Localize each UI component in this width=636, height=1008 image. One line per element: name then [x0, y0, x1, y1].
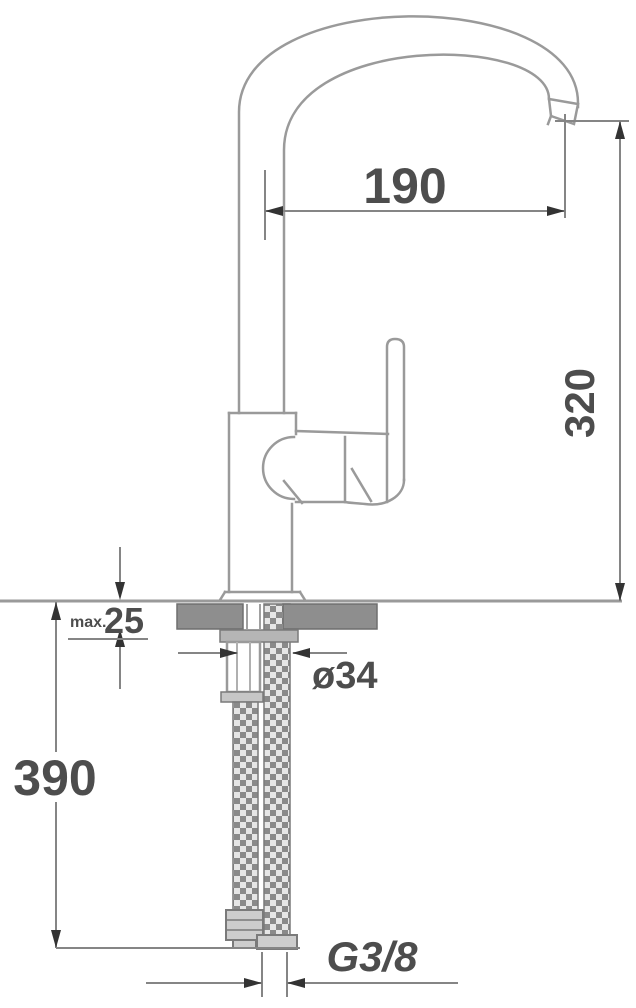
- hose-fitting-right: [257, 935, 297, 949]
- counter-slab-left: [177, 604, 243, 629]
- hose-end-left: [233, 940, 256, 948]
- spout-tip-edge: [548, 116, 551, 124]
- faucet-dimension-drawing: 190 320 max. 25 ø34: [0, 0, 636, 1008]
- arrowhead-top: [615, 121, 625, 139]
- arrowhead-bottom: [51, 930, 61, 948]
- faucet-outline: [220, 16, 578, 600]
- lever-arm-top: [296, 431, 388, 434]
- dim-deck-thickness-label: 25: [104, 600, 144, 641]
- threaded-shank: [227, 642, 260, 692]
- mounting-nut: [221, 692, 263, 702]
- braided-hose-right: [264, 604, 290, 935]
- cartridge-dome-arc: [263, 437, 294, 499]
- spout-outer-curve: [239, 16, 578, 413]
- dim-connection-thread-label: G3/8: [326, 933, 418, 980]
- arrowhead-right-tip: [244, 978, 262, 988]
- arrowhead-down: [115, 582, 125, 600]
- arrowhead-bottom: [615, 583, 625, 601]
- base-flare-right: [300, 592, 305, 600]
- shank-through-hole: [247, 604, 260, 629]
- dim-spout-height: 320: [555, 121, 629, 601]
- arrowhead-left-tip: [292, 648, 310, 658]
- dim-spout-reach: 190: [265, 114, 565, 240]
- dim-hole-diameter-label: ø34: [312, 655, 377, 697]
- lever-inner-diagonal: [352, 469, 371, 501]
- arrowhead-right: [547, 206, 565, 216]
- counter-slab-right: [283, 604, 377, 629]
- base-flare-left: [220, 592, 225, 600]
- arrowhead-top: [51, 602, 61, 620]
- dim-hose-length-label: 390: [13, 750, 96, 806]
- dim-deck-thickness: max. 25: [68, 547, 148, 689]
- dim-connection-thread: G3/8: [146, 933, 458, 997]
- dim-deck-max-prefix: max.: [70, 614, 106, 631]
- supply-hose-right: [264, 604, 290, 935]
- spout-inner-curve: [284, 55, 549, 413]
- dim-spout-reach-label: 190: [363, 158, 446, 214]
- lever-pivot: [345, 480, 404, 504]
- drawing-svg: 190 320 max. 25 ø34: [0, 0, 636, 1008]
- dimension-annotations: 190 320 max. 25 ø34: [12, 114, 629, 997]
- mounting-washer: [220, 630, 298, 642]
- arrowhead-left-tip: [287, 978, 305, 988]
- lever-grip: [387, 339, 404, 502]
- arrowhead-left: [265, 206, 283, 216]
- braided-hose-left: [233, 702, 258, 910]
- dim-spout-height-label: 320: [556, 368, 603, 438]
